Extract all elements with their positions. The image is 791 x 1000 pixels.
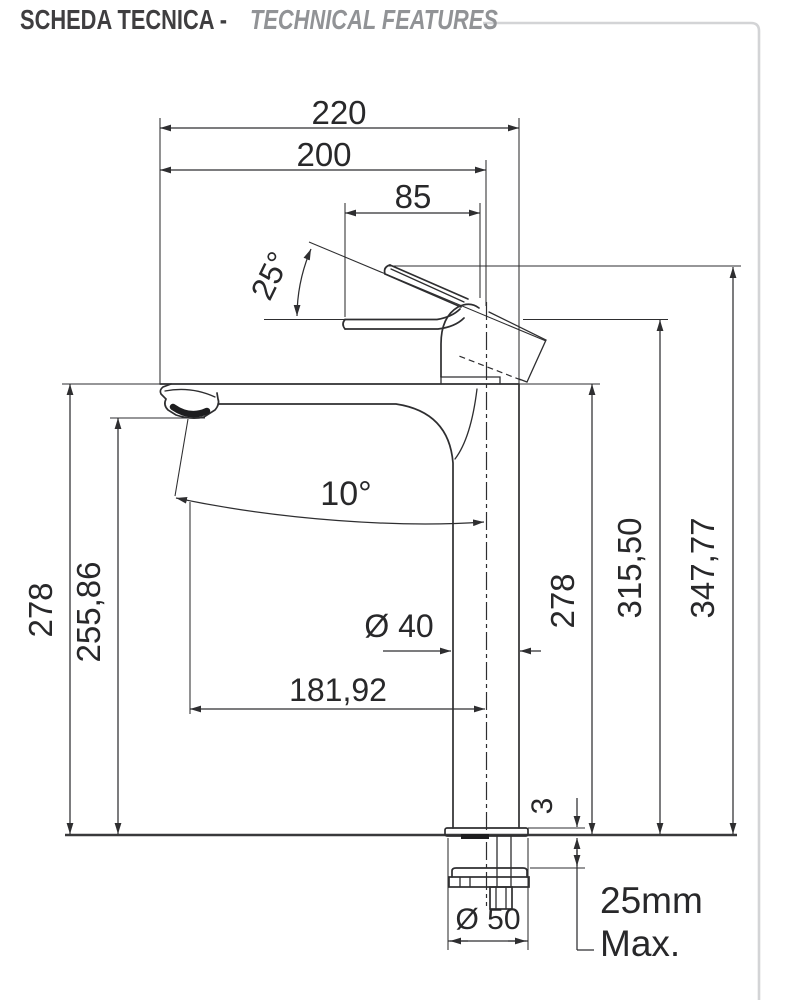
dim-handle-length-label: 85 [395,178,432,215]
note-counter-max: 25mm Max. [600,880,703,964]
dim-height-deck-right-label: 278 [544,573,581,628]
dim-height-total-label: 347,77 [684,518,721,619]
clamp-washer [452,868,527,877]
dimensions: 220 200 85 25° [22,94,741,964]
note-counter-max-line2: Max. [600,923,680,964]
datasheet-page: SCHEDA TECNICA - TECHNICAL FEATURES [0,0,791,1000]
dim-handle-angle-label: 25° [244,246,298,305]
aerator-screen [173,407,207,414]
dim-outlet-offset: 181,92 [190,502,485,714]
dim-spout-reach-label: 200 [296,136,351,173]
dim-height-deck-left-label: 278 [22,582,59,637]
page-title: SCHEDA TECNICA - TECHNICAL FEATURES [20,4,568,36]
dim-base-diameter: Ø 50 [448,838,528,950]
note-counter-max-line1: 25mm [600,880,703,921]
dim-height-outlet-label: 255,86 [70,562,107,663]
dim-handle-angle: 25° [244,242,546,341]
title-italian: SCHEDA TECNICA - [20,4,227,36]
title-english: TECHNICAL FEATURES [250,4,498,36]
dim-total-width-label: 220 [311,94,366,131]
dim-height-deck-right: 278 [544,384,592,834]
dim-spout-tilt-label: 10° [320,475,371,513]
dim-plate-thickness-label: 3 [526,798,559,815]
dim-spout-reach: 200 [160,136,486,306]
dim-height-outlet: 255,86 [70,418,205,834]
technical-drawing: 220 200 85 25° [0,0,791,1000]
dim-outlet-offset-label: 181,92 [289,672,387,708]
dim-base-diameter-label: Ø 50 [455,903,520,936]
dim-height-deck-left: 278 [22,384,70,834]
page-frame-line [483,23,759,1000]
dim-body-diameter-label: Ø 40 [364,608,433,644]
dim-height-handle-label: 315,50 [611,518,648,619]
dim-spout-tilt: 10° [175,419,484,524]
clamp-flange [449,877,529,887]
dim-plate-thickness: 3 [526,798,594,950]
base-gasket [461,834,489,839]
